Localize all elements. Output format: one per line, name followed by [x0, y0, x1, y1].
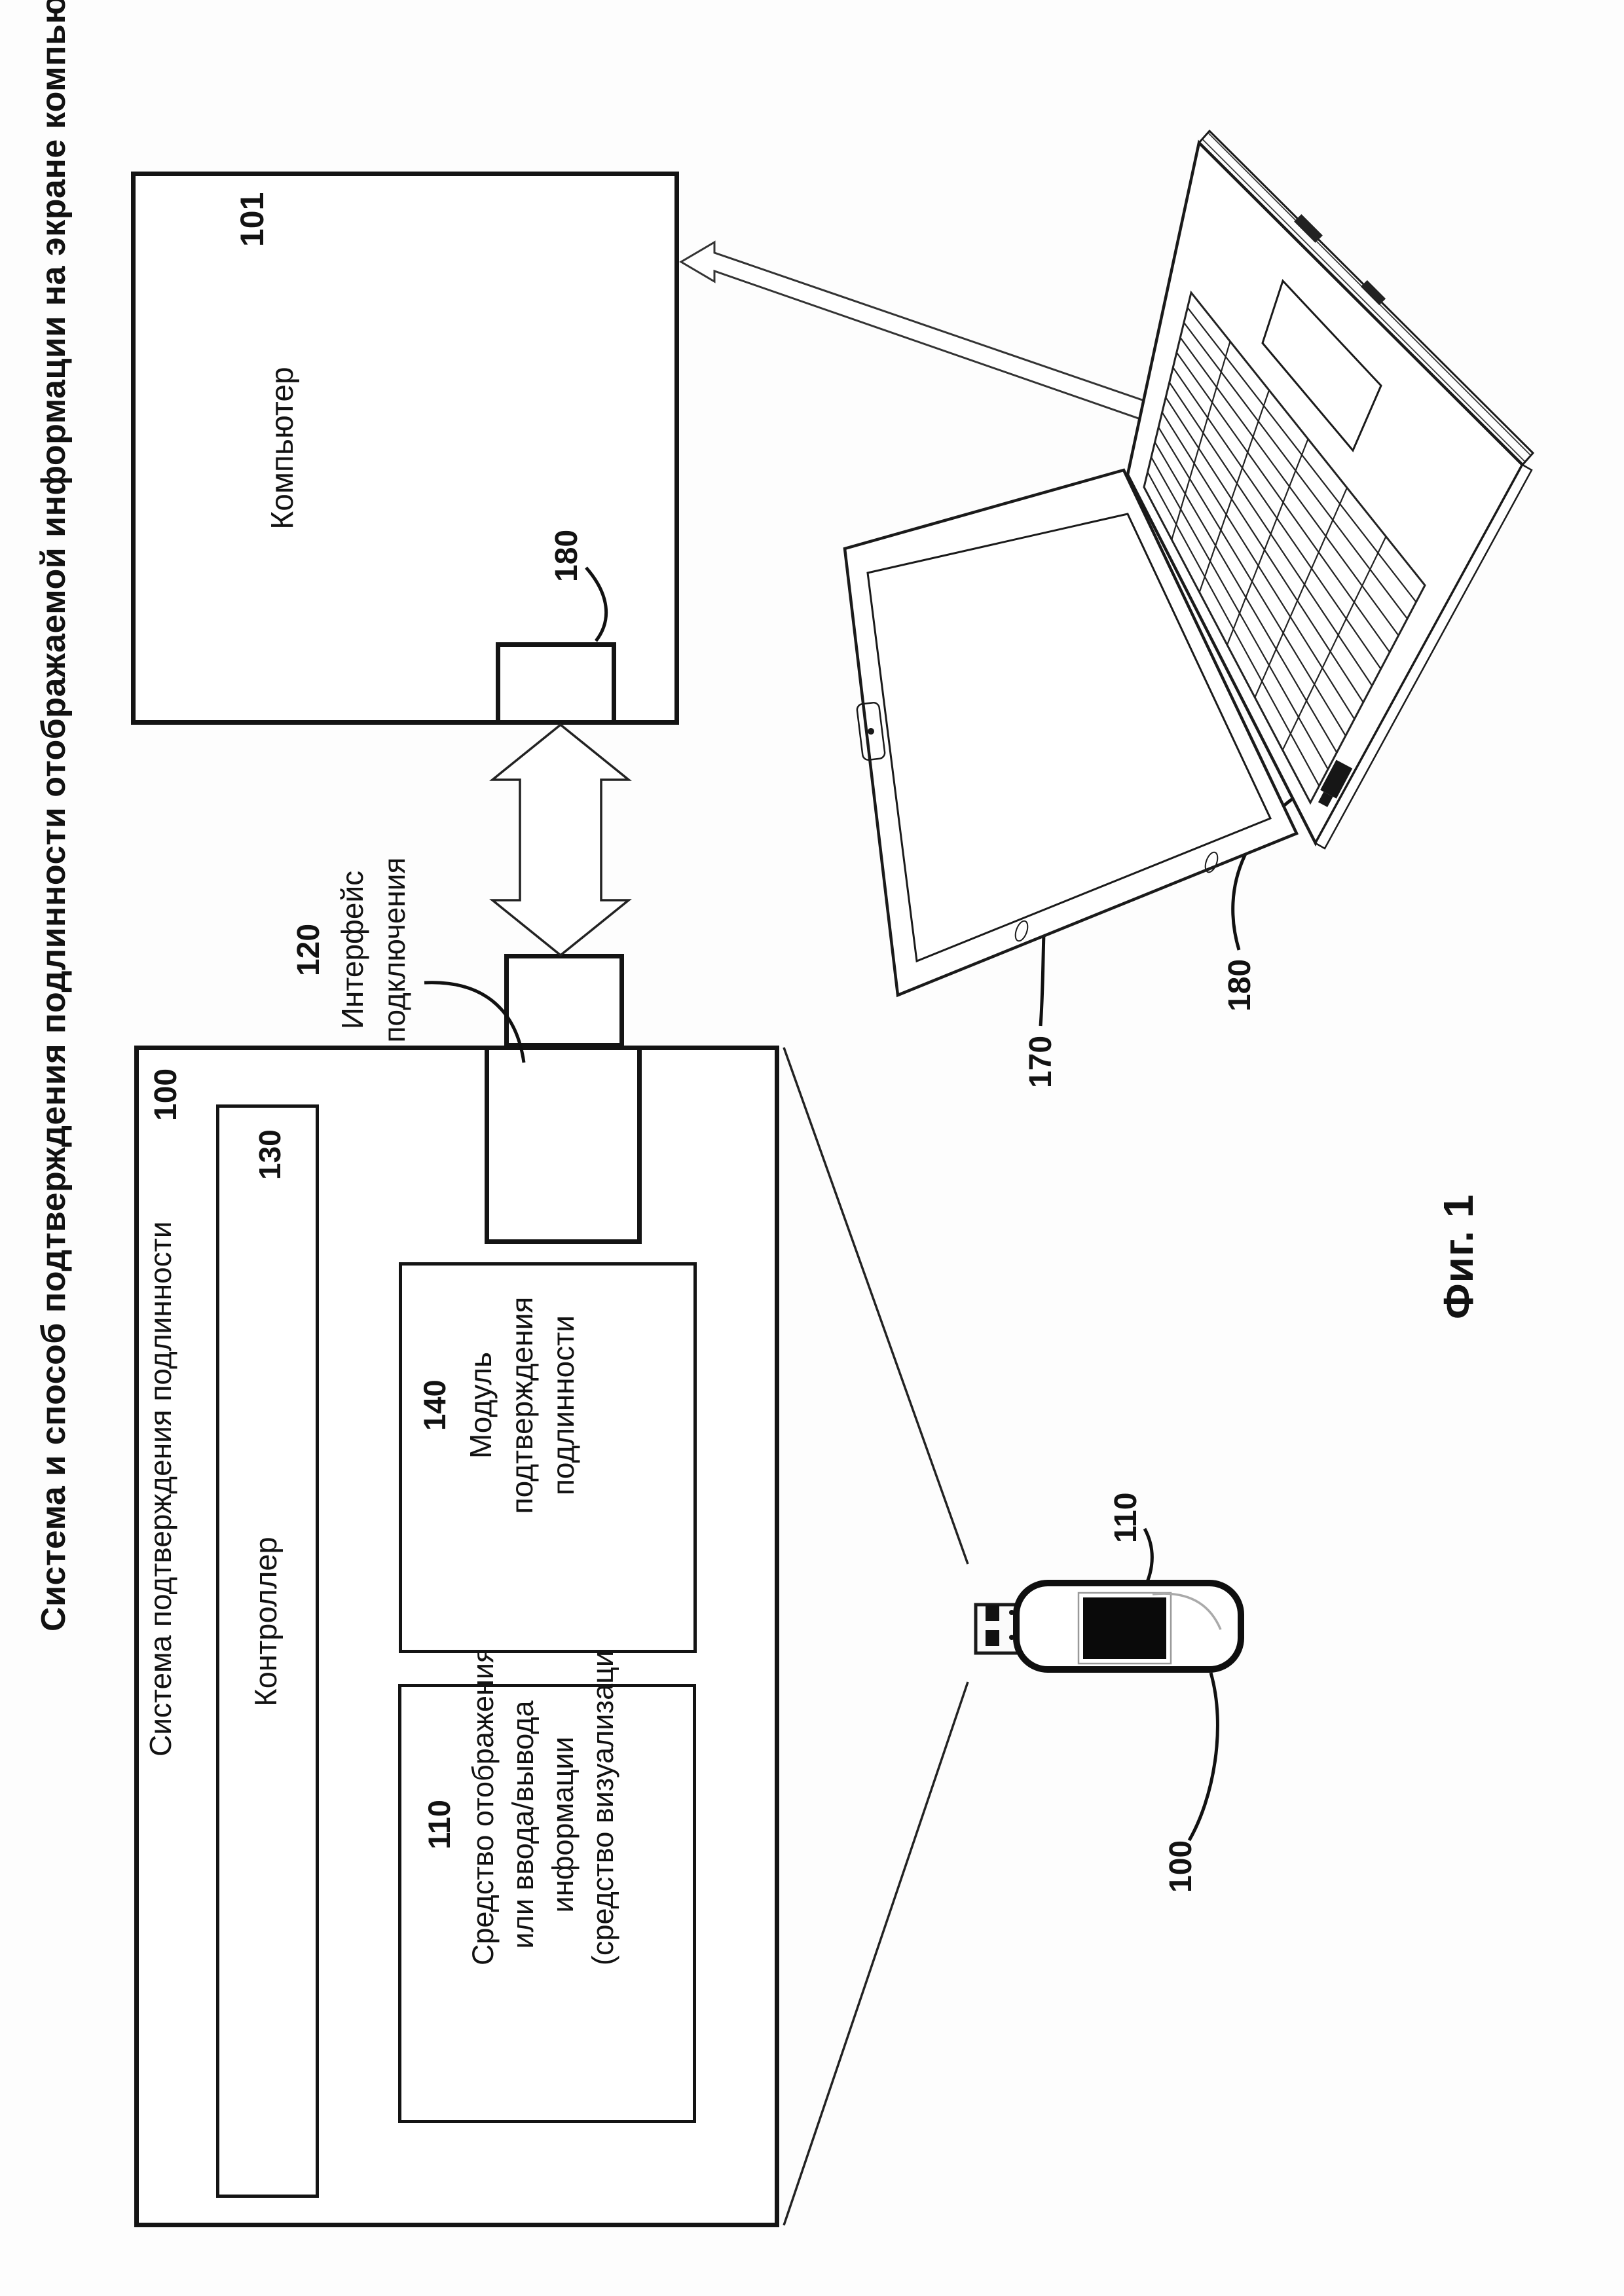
- io-box-content: 110 Средство отображения или ввода/вывод…: [419, 1684, 623, 1965]
- io-box-line: Средство отображения: [463, 1684, 503, 1965]
- interface-line: Интерфейс: [331, 848, 373, 1052]
- laptop-port: [1361, 280, 1386, 305]
- usb-display-ref: 110: [1108, 1493, 1144, 1543]
- laptop-lid: [845, 470, 1297, 995]
- page-title: Система и способ подтверждения подлиннос…: [34, 0, 73, 1631]
- usb-body: [1016, 1583, 1241, 1669]
- computer-port-ref: 180: [549, 530, 585, 582]
- interface-ref: 120: [288, 848, 330, 1052]
- figure-caption: Фиг. 1: [1434, 1194, 1483, 1319]
- io-box-ref: 110: [419, 1684, 459, 1965]
- auth-box-line: Модуль: [460, 1262, 502, 1548]
- usb-ref-leader: [1189, 1673, 1217, 1840]
- laptop-side-band: [1199, 131, 1533, 465]
- system-box-ref: 100: [148, 1068, 184, 1121]
- interface-label: 120 Интерфейс подключения: [288, 848, 415, 1052]
- laptop-arrow: [681, 242, 1150, 421]
- auth-box-content: 140 Модуль подтверждения подлинности: [414, 1262, 584, 1548]
- laptop-screen: [868, 514, 1270, 961]
- double-arrow: [492, 725, 629, 955]
- usb-display: [1083, 1597, 1166, 1659]
- io-box-line: (средство визуализации): [583, 1684, 623, 1965]
- laptop-drawing: [845, 131, 1533, 995]
- laptop-port: [1294, 214, 1323, 243]
- io-box-line: информации: [543, 1684, 583, 1965]
- controller-ref: 130: [252, 1129, 287, 1180]
- laptop-keyboard: [1144, 293, 1425, 803]
- laptop-usb-dongle: [1315, 760, 1353, 809]
- auth-box-line: подтверждения: [502, 1262, 543, 1548]
- controller-label: Контроллер: [248, 1104, 284, 2198]
- usb-contact: [986, 1605, 999, 1621]
- laptop-port-ref: 180: [1222, 959, 1258, 1011]
- webcam: [857, 702, 885, 761]
- usb-connector: [976, 1605, 1022, 1653]
- laptop-leader: [1041, 790, 1067, 1026]
- laptop-base: [1128, 143, 1522, 843]
- auth-box-ref: 140: [414, 1262, 455, 1548]
- system-box-title: Система подтверждения подлинности: [143, 1221, 178, 1757]
- usb-ref: 100: [1163, 1840, 1199, 1893]
- zoom-funnel-lines: [784, 1048, 968, 2225]
- laptop-touchpad: [1263, 281, 1381, 450]
- laptop-front-edge: [1316, 465, 1532, 848]
- laptop-ref: 170: [1023, 1036, 1059, 1088]
- interface-outer-box: [504, 954, 624, 1048]
- interface-inner-box: [485, 1046, 642, 1244]
- computer-port-box: [496, 642, 616, 725]
- interface-line: подключения: [373, 848, 415, 1052]
- laptop-port-leader: [1233, 776, 1331, 950]
- usb-contact: [986, 1630, 999, 1646]
- auth-box-line: подлинности: [543, 1262, 584, 1548]
- computer-box-label: Компьютер: [265, 172, 301, 725]
- figure-canvas: Система и способ подтверждения подлиннос…: [0, 0, 1624, 2296]
- usb-token-drawing: [976, 1583, 1241, 1669]
- io-box-line: или ввода/вывода: [503, 1684, 543, 1965]
